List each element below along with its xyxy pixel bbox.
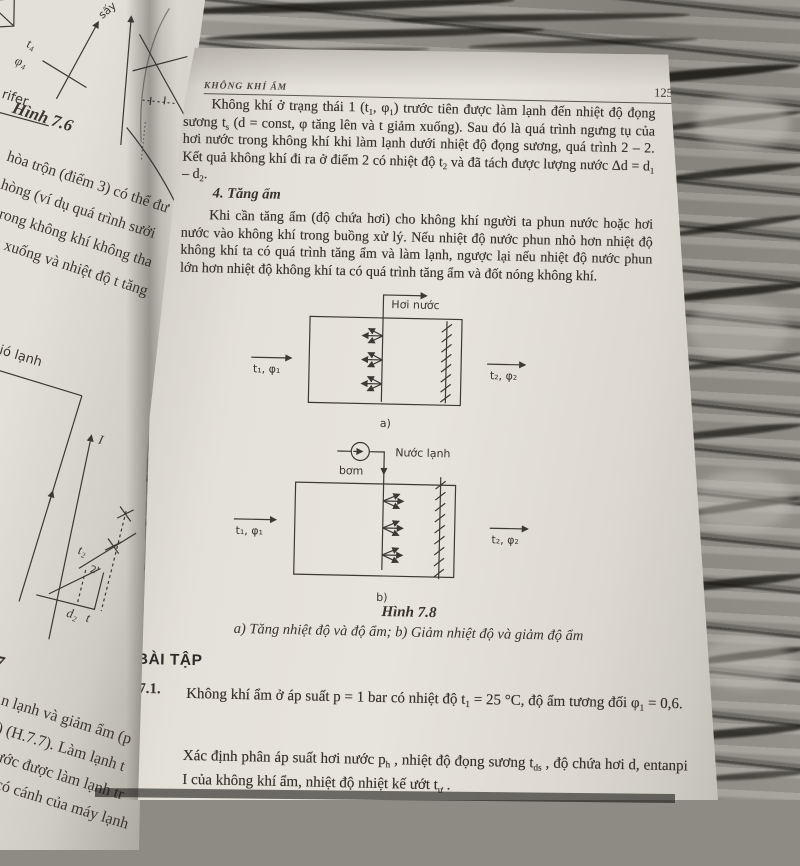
section-heading-tang-am: 4. Tăng ẩm: [212, 185, 280, 203]
air-inlet-state-label: t₁, φ₁: [235, 524, 263, 538]
air-outlet-state-label: t₂, φ₂: [490, 369, 518, 383]
steam-inlet-label: Hơi nước: [391, 298, 440, 312]
right-page-content: KHÔNG KHÍ ẨM 125 Không khí ở trạng thái …: [122, 33, 718, 811]
cold-water-label: Nước lạnh: [395, 446, 451, 460]
exercise-7-1-statement: Không khí ẩm ở áp suất p = 1 bar có nhiệ…: [186, 682, 691, 717]
air-outlet-state-label: t₂, φ₂: [491, 533, 519, 547]
wood-light-patch: [688, 300, 788, 360]
wood-light-patch: [692, 470, 792, 532]
running-title: KHÔNG KHÍ ẨM: [204, 81, 287, 93]
pump-label: bơm: [339, 464, 364, 478]
chart-t2-label: t₂: [77, 542, 89, 559]
figure-7-6-t4-label: t₄: [25, 35, 38, 52]
wood-grain-streak: [468, 36, 698, 50]
wood-light-patch: [695, 95, 790, 150]
chart-point2-label: 2': [89, 564, 101, 577]
figure-7-6-phi4-label: φ₄: [13, 53, 29, 71]
i-axis-label: I: [96, 431, 105, 447]
wood-grain-streak: [658, 160, 800, 184]
chart-t-label: t: [85, 610, 93, 626]
wood-grain-streak: [205, 26, 545, 43]
exercises-heading: BÀI TẬP: [137, 651, 203, 670]
paragraph-humidify: Khi cần tăng ẩm (độ chứa hơi) cho không …: [180, 207, 653, 287]
paragraph-dehumidify: Không khí ở trạng thái 1 (t1, φ1) trước …: [182, 96, 656, 194]
wood-grain-streak: [390, 11, 690, 23]
wood-grain-streak: [668, 212, 800, 238]
right-book-page: KHÔNG KHÍ ẨM 125 Không khí ở trạng thái …: [138, 34, 718, 800]
subfigure-b-label: b): [376, 591, 388, 604]
wood-light-patch: [700, 635, 792, 690]
page-number: 125: [654, 86, 673, 101]
subfigure-a-label: a): [380, 417, 391, 430]
figure-7-8b: bơm Nước lạnh: [226, 435, 552, 615]
book-photo-scene: t₄ φ₄ sấy rifer Hình 7.6 hòa trộn (điểm …: [0, 0, 800, 800]
chart-d2-label: d₂: [65, 605, 80, 622]
figure-7-8a: Hơi nước t₁, φ₁: [228, 287, 553, 441]
air-inlet-state-label: t₁, φ₁: [253, 362, 281, 376]
